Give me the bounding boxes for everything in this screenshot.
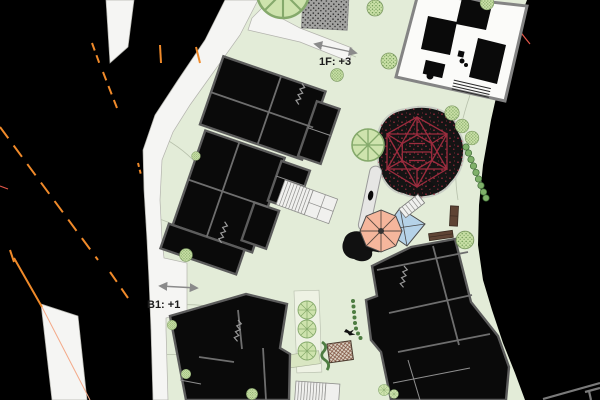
shrub [381, 53, 397, 69]
gravel-area [301, 0, 349, 30]
shrub [445, 106, 459, 120]
level-label-b1: B1: +1 [147, 299, 180, 311]
tree-small [379, 385, 390, 396]
site-plan-map: 1F: +3 B1: +1 [0, 0, 600, 400]
level-label-1f: 1F: +3 [319, 56, 351, 68]
tree-round [352, 129, 384, 161]
bench-north [449, 206, 458, 226]
pergola [327, 341, 353, 363]
building-south-centre [170, 294, 290, 400]
shrub [181, 369, 191, 379]
shrub [456, 231, 474, 249]
tree-row [298, 342, 316, 360]
outdoor-stair-south [295, 381, 340, 400]
shrub [246, 388, 257, 399]
umbrella-canopy [360, 210, 402, 252]
shrub [180, 249, 193, 262]
tree-row [298, 301, 316, 319]
shrub [455, 119, 469, 133]
shrub [167, 320, 177, 330]
tree-row [298, 320, 316, 338]
shrub [192, 152, 201, 161]
tree-small [390, 390, 399, 399]
shrub [367, 0, 383, 16]
shrub [465, 131, 479, 145]
shrub [331, 69, 344, 82]
